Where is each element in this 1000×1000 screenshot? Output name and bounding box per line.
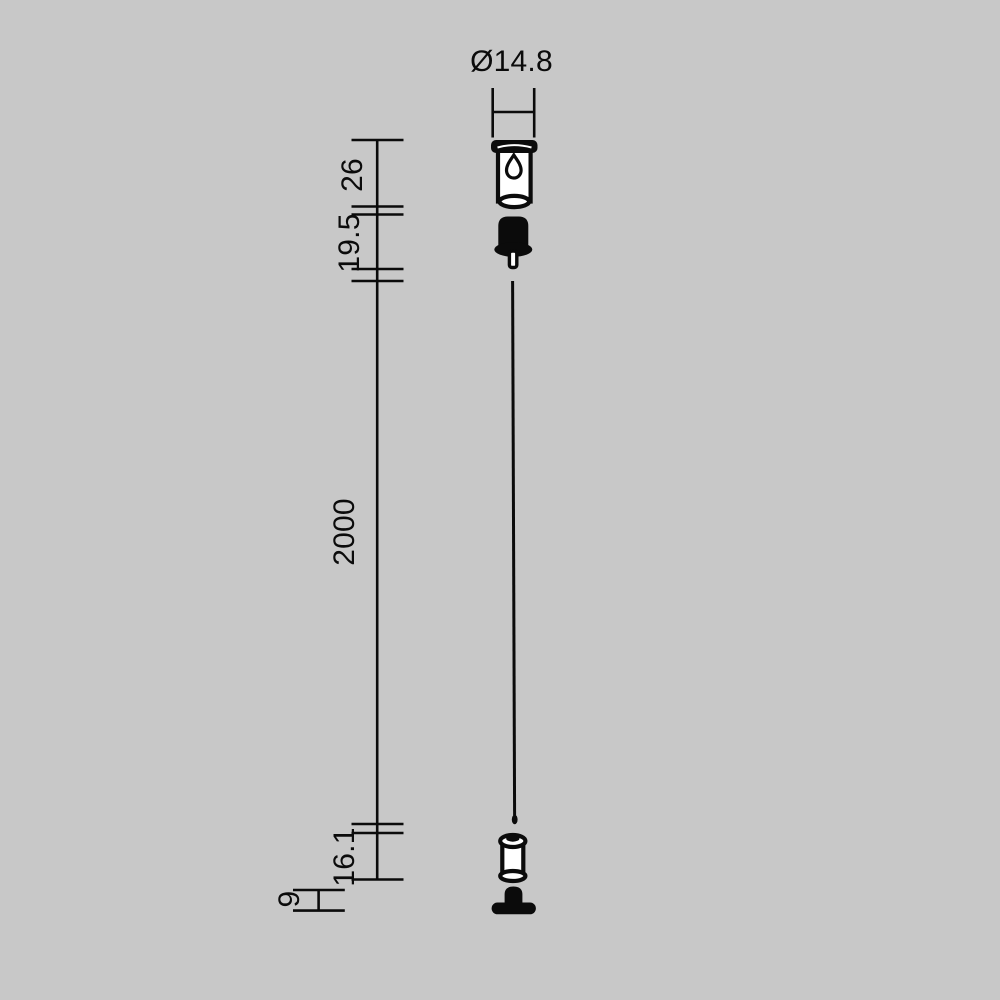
cable-entry-hole (506, 836, 519, 842)
gripper-nipple (509, 251, 516, 268)
dimension-diameter-lines (493, 88, 535, 138)
dim-label-base-height: 9 (275, 890, 305, 907)
dim-label-gripper-height: 19.5 (335, 213, 365, 272)
cable-tip (512, 815, 518, 825)
dim-label-adjuster-height: 16.1 (330, 827, 360, 886)
dim-label-cup-height: 26 (338, 158, 368, 192)
dim-label-diameter: Ø14.8 (470, 47, 553, 77)
cable-gripper-drawing (494, 217, 532, 268)
track-fixing-drawing (492, 887, 536, 915)
fixing-base-plate (492, 903, 536, 915)
steel-cable-drawing (512, 281, 518, 824)
drawing-linework (0, 0, 1000, 1000)
dim-label-cable-length: 2000 (330, 498, 360, 566)
height-adjuster-drawing (500, 835, 525, 881)
technical-drawing-canvas: Ø14.8 26 19.5 2000 16.1 9 (0, 0, 1000, 1000)
ceiling-canopy-drawing (491, 140, 538, 207)
